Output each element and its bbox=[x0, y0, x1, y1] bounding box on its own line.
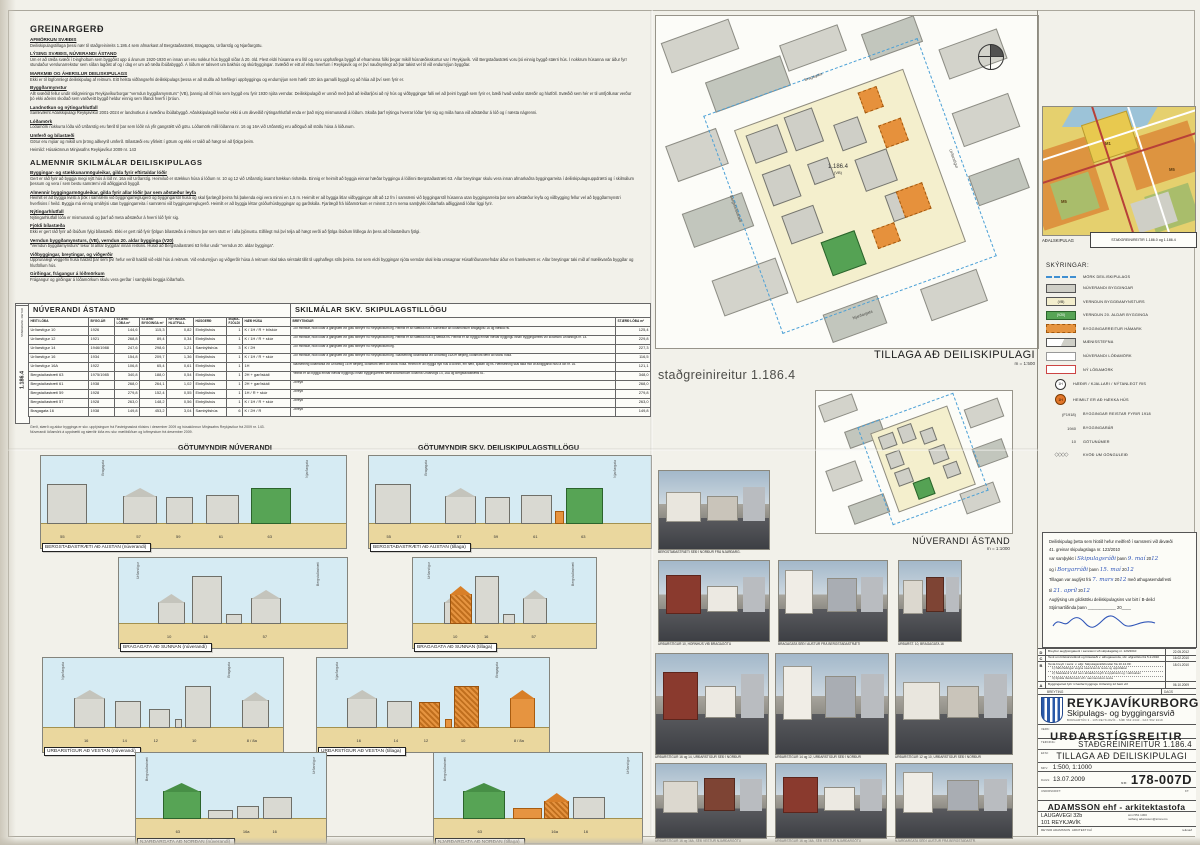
cell-nylod: 149,8 bbox=[616, 407, 651, 416]
report-section: Girðingar, frágangur á lóðmörkum Frágang… bbox=[30, 271, 642, 282]
house-outline bbox=[175, 719, 182, 728]
photo-shape bbox=[984, 779, 1007, 812]
report-section: Landnotkun og nýtingarhlutfall Samkvæmt … bbox=[30, 105, 642, 116]
cell-breyting: Óbreytt bbox=[291, 389, 616, 398]
section-heading: Viðbyggingar, breytingar, og viðgerðir bbox=[30, 252, 642, 257]
stadgreinireitur-label: staðgreinireitur 1.186.4 bbox=[658, 368, 795, 382]
house-outline bbox=[149, 709, 171, 728]
house-number: 8 / 8a bbox=[514, 738, 524, 743]
report-section: Umferð og bílastæði Götur eru mjóar og m… bbox=[30, 133, 642, 144]
cell-ar: 1975/1985 bbox=[89, 371, 115, 380]
architect-name: REYNIR ADAMSSON bbox=[1041, 828, 1070, 832]
street-name-label: Urðarstígur bbox=[627, 757, 630, 774]
section-text: Frágangur og girðingar á lóðamörkum skul… bbox=[30, 277, 636, 282]
context-building bbox=[818, 393, 858, 422]
street-name-label: Bergstaðastræti bbox=[444, 757, 447, 781]
section-text: Gert er ráð fyrir að byggja megi nýtt hú… bbox=[30, 176, 636, 187]
cell-lod: 247,6 bbox=[115, 344, 140, 353]
legend-swatch-icon: (V20) bbox=[1046, 311, 1076, 320]
house-outline bbox=[485, 497, 510, 524]
house-outline bbox=[555, 511, 563, 524]
stamp-text-segment: og í bbox=[1049, 567, 1057, 572]
kt-label: KT: bbox=[1185, 789, 1189, 799]
house-outline bbox=[237, 806, 260, 819]
section-heading: Verndun byggðamynsturs, (VB), verndun 20… bbox=[30, 238, 642, 243]
plan-block-id: 1.186.4 bbox=[828, 164, 848, 170]
context-building bbox=[964, 397, 1005, 428]
section-text: Götur eru mjóar og mikið um þröng aðkeyr… bbox=[30, 139, 636, 144]
cell-husgerd: Einbýlishús bbox=[194, 389, 227, 398]
site-photo bbox=[658, 470, 770, 550]
legend-label: BYGGINGAR REISTAR FYRIR 1918 bbox=[1083, 412, 1151, 416]
adalskipulag-caption: AÐALSKIPULAG bbox=[1042, 238, 1074, 243]
revision-id: D bbox=[1037, 649, 1046, 655]
cell-ibudir: 1 bbox=[227, 380, 243, 389]
legend-label: KVÖÐ UM GÖNGULEIÐ bbox=[1083, 453, 1128, 457]
site-plan-nuverandi bbox=[815, 390, 1013, 534]
stamp-line: var samþykkt í Skipulagsráði þann 9. maí… bbox=[1049, 554, 1190, 565]
revision-date: 06.10.2009 bbox=[1165, 682, 1196, 688]
page-edge-shadow bbox=[0, 0, 16, 845]
legend-item: 1H HEIMILT ER AÐ HÆKKA HÚS bbox=[1046, 394, 1194, 405]
dags-label: DAGS: bbox=[1041, 778, 1050, 782]
cell-husgerd: Einbýlishús bbox=[194, 362, 227, 371]
street-name-label: Bragagata bbox=[425, 460, 428, 476]
house-outline bbox=[208, 810, 233, 819]
teikn-value: STAÐGREINIREITUR 1.186.4 bbox=[1041, 740, 1192, 749]
col-nylod: STÆRÐ LÓÐA m² bbox=[616, 317, 651, 326]
mkv-label: MKV: bbox=[1041, 766, 1048, 770]
table-row: Bergstaðastræti 59 1928 279,8 152,4 0,55… bbox=[29, 389, 651, 398]
context-building bbox=[968, 158, 1030, 207]
cell-bygg: 65,4 bbox=[140, 362, 167, 371]
handwritten-entry: 7. mars bbox=[1092, 577, 1113, 583]
stamp-text-segment: þann bbox=[1088, 567, 1100, 572]
stamp-line: og í Borgarráði þann 15. maí 2012 bbox=[1049, 565, 1190, 576]
block-building bbox=[745, 124, 787, 164]
revision-text: Byggingarreit fyrir 1 hæðar byggingu Urð… bbox=[1046, 682, 1165, 688]
cell-haed: 2H + garðskáli bbox=[243, 380, 291, 389]
stamp-text: Deiliskipulag þetta sem hlotið hefur með… bbox=[1049, 538, 1190, 612]
caption-text: TILLAGA AÐ DEILISKIPULAGI bbox=[735, 349, 1035, 361]
street-name-label: Bragagata bbox=[496, 662, 499, 678]
legend-item: ◇◇◇◇ KVÖÐ UM GÖNGULEIÐ bbox=[1046, 451, 1194, 460]
elevation-drawing: BergstaðastrætiUrðarstígur6316a16NJARÐAR… bbox=[433, 752, 643, 844]
cell-ar: 1928 bbox=[89, 398, 115, 407]
house-outline bbox=[347, 698, 377, 728]
photo-caption: URÐARSTÍGUR 14 og 12, URÐARSTÍGUR SÉÐ Í … bbox=[775, 755, 911, 759]
stamp-text-segment: Stjórnartíðinda þann ____________ 20____ bbox=[1049, 605, 1131, 610]
cell-breyting: Lóð minnkar, hluti lóðar á gangstétt við… bbox=[291, 344, 616, 353]
cell-heiti: Bragagata 16 bbox=[29, 407, 89, 416]
section-text: Lóðamörk nokkurra lóða við Urðarstíg eru… bbox=[30, 124, 636, 129]
cell-heiti: Urðarstígur 16 bbox=[29, 353, 89, 362]
fold-crease bbox=[8, 448, 1038, 451]
cell-bygg: 152,4 bbox=[140, 389, 167, 398]
cell-ar: 1922 bbox=[89, 362, 115, 371]
cell-breyting: Lóð minnkar, hluti lóðar á gangstétt við… bbox=[291, 326, 616, 335]
photo-caption: BRAGAGATA SÉÐ Í AUSTUR FRÁ BERGSTAÐASTRÆ… bbox=[778, 642, 910, 646]
greinargerd-body: AFMÖRKUN SVÆÐIS Deiliskipulagstillaga þe… bbox=[30, 37, 642, 152]
handwritten-entry: Borgarráði bbox=[1057, 567, 1088, 573]
cell-breyting: Óbreytt bbox=[291, 407, 616, 416]
revision-table: DBreyttur auglýsingatexti í samræmi við … bbox=[1037, 648, 1196, 695]
cell-breyting: Heimilt er að byggja einnar hæðar byggin… bbox=[291, 371, 616, 380]
house-outline bbox=[166, 497, 193, 524]
table-row: Urðarstígur 12 1921 268,8 89,4 0,34 Einb… bbox=[29, 335, 651, 344]
efni-row: EFNI: TILLAGA AÐ DEILISKIPULAGI bbox=[1037, 750, 1196, 763]
legend-label: HÆÐIR / KJALLARI / NÝTANLEGT RIS bbox=[1073, 382, 1146, 386]
handwritten-entry: 12 bbox=[1083, 588, 1090, 594]
cell-nyt: 0,54 bbox=[167, 371, 194, 380]
stamp-line: Stjórnartíðinda þann ____________ 20____ bbox=[1049, 604, 1190, 612]
cell-haed: 1H / R + skúr bbox=[243, 389, 291, 398]
dags-nr-row: DAGS: 13.07.2009 NR:178-007D bbox=[1037, 772, 1196, 788]
photo-caption: URÐARSTÍGUR 10, HORNHÚS VIÐ BRAGAGÖTU bbox=[658, 642, 792, 646]
org-address: BORGARTÚN 3 - 105 REYKJAVÍK - SÍMI 563 2… bbox=[1067, 718, 1199, 722]
cell-ar: 1938 bbox=[89, 407, 115, 416]
table-header-row: HEITI LÓÐA BYGG.ÁR STÆRÐ LÓÐA m² STÆRÐ B… bbox=[29, 317, 651, 326]
section-heading: Lóðamörk bbox=[30, 119, 642, 124]
photo-caption: BERGSTAÐASTRÆTI SÉÐ Í NORÐUR FRÁ NJARÐAR… bbox=[658, 550, 792, 554]
cell-lod: 154,8 bbox=[115, 353, 140, 362]
stamp-line: 41. greinar skipulagslaga nr. 123/2010 bbox=[1049, 546, 1190, 554]
cell-bygg: 298,6 bbox=[140, 344, 167, 353]
block-building bbox=[781, 205, 823, 245]
house-outline bbox=[115, 701, 141, 728]
table-row: Bergstaðastræti 57 1928 263,0 148,2 0,56… bbox=[29, 398, 651, 407]
cell-husgerd: Einbýlishús bbox=[194, 380, 227, 389]
photo-shape bbox=[903, 682, 940, 720]
legend-item: (F1918) BYGGINGAR REISTAR FYRIR 1918 bbox=[1046, 410, 1194, 419]
handwritten-entry: 12 bbox=[1127, 567, 1134, 573]
cell-lod: 279,8 bbox=[115, 389, 140, 398]
cell-nylod: 229,8 bbox=[616, 335, 651, 344]
street-name-label: Njarðargata bbox=[306, 460, 309, 478]
street-name-label: Bergstaðastræti bbox=[146, 757, 149, 781]
elevation-label: BRAGAGATA AÐ SUNNAN (tillaga) bbox=[414, 643, 497, 652]
house-outline bbox=[566, 488, 603, 524]
context-building bbox=[661, 19, 740, 74]
cell-heiti: Bergstaðastræti 57 bbox=[29, 398, 89, 407]
house-outline bbox=[513, 808, 542, 819]
cell-haed: 2H + garðskáli bbox=[243, 371, 291, 380]
street-name-label: Bragagata bbox=[228, 662, 231, 678]
house-outline bbox=[47, 484, 87, 524]
report-section: Almennir byggingarmöguleikar, gilda fyri… bbox=[30, 190, 642, 206]
house-number: 8 / 8a bbox=[247, 738, 257, 743]
house-number: 10 bbox=[461, 738, 465, 743]
section-heading: Almennir byggingarmöguleikar, gilda fyri… bbox=[30, 190, 642, 195]
cell-husgerd: Einbýlishús bbox=[194, 353, 227, 362]
section-heading: MARKMIÐ OG ÁHERSLUR DEILISKIPULAGS bbox=[30, 71, 642, 76]
plan-center-label: 1.186.4 (VB) bbox=[808, 164, 868, 176]
legend-label: MÖRK DEILISKIPULAGS bbox=[1083, 275, 1130, 279]
legend-swatch-icon: 1H bbox=[1055, 379, 1066, 390]
cell-breyting: Óbreytt bbox=[291, 398, 616, 407]
elevation-drawing: NjarðargataBragagata161412108 / 8aURÐARS… bbox=[42, 657, 284, 753]
elevation-drawing: UrðarstígurBergstaðastræti101657BRAGAGAT… bbox=[412, 557, 597, 649]
stamp-line: Tillagan var auglýst frá 7. mars 2012 me… bbox=[1049, 575, 1190, 586]
section-text: Heimild: Húsakönnun Minjasafns Reykjavík… bbox=[30, 147, 636, 152]
col-lod: STÆRÐ LÓÐA m² bbox=[115, 317, 140, 326]
legend-swatch-icon bbox=[1046, 324, 1076, 333]
legend-label: GÖTUNÚMER bbox=[1083, 440, 1110, 444]
section-text: Deiliskipulagstillaga þessi nær til stað… bbox=[30, 43, 636, 48]
cell-nyt: 1,21 bbox=[167, 344, 194, 353]
site-photo bbox=[775, 653, 889, 755]
cell-nylod: 121,1 bbox=[616, 362, 651, 371]
cell-ar: 1921 bbox=[89, 335, 115, 344]
legend-items: MÖRK DEILISKIPULAGS NÚVERANDI BYGGINGAR … bbox=[1046, 275, 1194, 460]
revision-date: 18.01.2010 bbox=[1165, 662, 1196, 681]
house-number: 57 bbox=[136, 534, 140, 539]
stamp-text-segment: þann bbox=[1116, 556, 1128, 561]
house-outline bbox=[445, 719, 452, 728]
house-number: 16 bbox=[484, 634, 488, 639]
section-heading: Fjöldi bílastæða bbox=[30, 223, 642, 228]
legend-item: MÖRK DEILISKIPULAGS bbox=[1046, 275, 1194, 279]
handwritten-entry: 9. maí bbox=[1128, 556, 1146, 562]
table-group-right: SKILMÁLAR SKV. SKIPULAGSTILLÖGU bbox=[291, 304, 651, 318]
elevation-label: BRAGAGATA AÐ SUNNAN (núverandi) bbox=[120, 643, 212, 652]
col-bygg: STÆRÐ BYGGINGA m² bbox=[140, 317, 167, 326]
netfang-value: adamsson@simnet.is bbox=[1139, 817, 1168, 821]
verk-row: VERK: URÐARSTÍGSREITIR bbox=[1037, 725, 1196, 739]
photo-shape bbox=[947, 780, 979, 812]
building-reitur-orange bbox=[871, 222, 900, 249]
col-heiti: HEITI LÓÐA bbox=[29, 317, 89, 326]
photo-shape bbox=[825, 676, 856, 718]
cell-bygg: 89,4 bbox=[140, 335, 167, 344]
section-text: Allt svæðið fellur undir skilgreiningu R… bbox=[30, 91, 636, 102]
house-number: 63 bbox=[176, 829, 180, 834]
photo-shape bbox=[783, 666, 812, 720]
right-column-divider bbox=[1037, 10, 1038, 835]
teikn-label: TEIKNING: bbox=[1041, 740, 1055, 744]
greinargerd-title: GREINARGERÐ bbox=[30, 24, 642, 34]
architect-title: ARKITEKT FAÍ bbox=[1072, 828, 1092, 832]
cell-heiti: Bergstaðastræti 59 bbox=[29, 389, 89, 398]
legend-swatch-icon bbox=[1046, 338, 1076, 347]
cell-bygg: 209,7 bbox=[140, 353, 167, 362]
photo-shape bbox=[666, 492, 701, 522]
mkv-row: MKV: 1:500, 1:1000 bbox=[1037, 763, 1196, 772]
efni-value: TILLAGA AÐ DEILISKIPULAGI bbox=[1041, 751, 1192, 761]
house-number: 63 bbox=[268, 534, 272, 539]
cell-ar: 1946/1988 bbox=[89, 344, 115, 353]
table-footnotes: Gerð, stærð og aldur bygginga er skv. up… bbox=[30, 425, 265, 435]
cell-nyt: 0,55 bbox=[167, 389, 194, 398]
cell-breyting: Staðsetning lóðamarka við Urðarstíg 16 e… bbox=[291, 362, 616, 371]
block-building bbox=[919, 427, 937, 445]
fold-crease bbox=[650, 10, 653, 835]
architect-row: REYNIR ADAMSSON ARKITEKT FAÍ teiknað bbox=[1037, 827, 1196, 836]
legend-swatch-icon bbox=[1046, 276, 1076, 278]
almennir-title: ALMENNIR SKILMÁLAR DEILISKIPULAGS bbox=[30, 158, 642, 167]
photo-shape bbox=[926, 577, 944, 613]
undirskrift-row: UNDIRSKRIFT: KT: bbox=[1037, 788, 1196, 801]
photo-shape bbox=[946, 577, 958, 612]
cell-nyt: 0,61 bbox=[167, 362, 194, 371]
elevation-drawing: NjarðargataBragagata161412108 / 8aURÐARS… bbox=[316, 657, 550, 753]
elevation-label: URÐARSTÍGUR AÐ VESTAN (tillaga) bbox=[318, 747, 406, 756]
photo-shape bbox=[666, 575, 701, 614]
almennir-section: ALMENNIR SKILMÁLAR DEILISKIPULAGS Byggin… bbox=[30, 158, 642, 300]
photo-caption: URÐARST. 10, BRAGAGATA 16 bbox=[898, 642, 984, 646]
context-building bbox=[779, 24, 847, 72]
cell-lod: 268,0 bbox=[115, 380, 140, 389]
house-number: 16 bbox=[84, 738, 88, 743]
section-text: Samkvæmt Aðalskipulagi Reykjavíkur 2001-… bbox=[30, 110, 636, 115]
house-number: 57 bbox=[263, 634, 267, 639]
cell-heiti: Urðarstígur 16A bbox=[29, 362, 89, 371]
street-name-label: Urðarstígur bbox=[137, 562, 140, 579]
section-heading: Byggðarmynstur bbox=[30, 85, 642, 90]
house-outline bbox=[185, 686, 211, 728]
house-number: 63 bbox=[478, 829, 482, 834]
context-building bbox=[825, 460, 863, 492]
section-heading: Byggingar- og stækkunarmöguleikar, gilda… bbox=[30, 170, 642, 175]
site-photo bbox=[895, 653, 1013, 755]
revision-row: BTexta breytt í samr. v. afgr. Skipulags… bbox=[1037, 662, 1196, 682]
cell-husgerd: Einbýlishús bbox=[194, 335, 227, 344]
cell-lod: 340,8 bbox=[115, 371, 140, 380]
photo-caption: URÐARSTÍGUR 12 og 10, URÐARSTÍGUR SÉÐ Í … bbox=[895, 755, 1035, 759]
cell-lod: 144,6 bbox=[115, 326, 140, 335]
section-text: "Verndun byggðamynsturs" tekur til allra… bbox=[30, 243, 636, 248]
legend-label: BYGGINGARÁR bbox=[1083, 426, 1113, 430]
house-outline bbox=[510, 698, 536, 728]
elevation-drawing: BragagataNjarðargata5557596163BERGSTAÐAS… bbox=[368, 455, 652, 549]
reykjavik-coat-of-arms-icon bbox=[1041, 697, 1063, 723]
house-number: 16 bbox=[357, 738, 361, 743]
cell-nyt: 0,34 bbox=[167, 335, 194, 344]
legend-item: NÚVERANDI BYGGINGAR bbox=[1046, 284, 1194, 293]
cell-nyt: 1,02 bbox=[167, 380, 194, 389]
stamp-text-segment: með athugasemdafresti bbox=[1126, 577, 1171, 582]
cell-husgerd: Einbýlishús bbox=[194, 371, 227, 380]
revision-text: Texta breytt í samr. v. afgr. Skipulagsr… bbox=[1046, 662, 1165, 681]
col-ar: BYGG.ÁR bbox=[89, 317, 115, 326]
cell-nyt: 1,36 bbox=[167, 353, 194, 362]
table-row: Bragagata 16 1938 149,8 453,2 3,04 Sambý… bbox=[29, 407, 651, 416]
almennir-body: Byggingar- og stækkunarmöguleikar, gilda… bbox=[30, 170, 642, 282]
house-outline bbox=[158, 602, 185, 624]
cell-ibudir: 1 bbox=[227, 398, 243, 407]
col-breyting: BREYTINGAR bbox=[291, 317, 616, 326]
stamp-text-segment: Deiliskipulag þetta sem hlotið hefur með… bbox=[1049, 539, 1173, 544]
legend-item: 10 GÖTUNÚMER bbox=[1046, 437, 1194, 446]
greinargerd-section: GREINARGERÐ AFMÖRKUN SVÆÐIS Deiliskipula… bbox=[30, 24, 642, 154]
mkv-value: 1:500, 1:1000 bbox=[1053, 764, 1092, 771]
house-outline bbox=[544, 801, 569, 819]
photo-shape bbox=[860, 779, 882, 812]
cell-haed: K / 2H / R bbox=[243, 407, 291, 416]
section-heading: Landnotkun og nýtingarhlutfall bbox=[30, 105, 642, 110]
legend-item: 1H HÆÐIR / KJALLARI / NÝTANLEGT RIS bbox=[1046, 379, 1194, 390]
photo-shape bbox=[903, 580, 924, 614]
block-building bbox=[894, 467, 914, 487]
handwritten-entry: 15. maí bbox=[1100, 567, 1121, 573]
protected-building-green bbox=[913, 477, 936, 500]
house-outline bbox=[521, 495, 552, 524]
block-building bbox=[897, 423, 917, 444]
stamp-line: Deiliskipulag þetta sem hlotið hefur með… bbox=[1049, 538, 1190, 546]
teiknad-label: teiknað bbox=[1182, 828, 1192, 835]
legend-swatch-icon: (VB) bbox=[1046, 297, 1076, 306]
street-name-label: Njarðargata bbox=[614, 460, 617, 478]
block-building bbox=[942, 461, 961, 479]
dept-name: Skipulags- og byggingarsvið bbox=[1067, 709, 1199, 718]
site-photo bbox=[658, 560, 770, 642]
cell-bygg: 115,3 bbox=[140, 326, 167, 335]
street-name-label: Bergstaðastræti bbox=[572, 562, 575, 586]
table-row: Bergstaðastræti 63 1975/1985 340,8 188,0… bbox=[29, 371, 651, 380]
elevation-drawing: BergstaðastrætiUrðarstígur6316a16NJARÐAR… bbox=[135, 752, 327, 844]
block-building bbox=[784, 107, 825, 151]
house-outline bbox=[206, 495, 240, 524]
stamp-text-segment: var samþykkt í bbox=[1049, 556, 1077, 561]
cell-nyt: 3,04 bbox=[167, 407, 194, 416]
house-outline bbox=[503, 614, 516, 624]
photo-shape bbox=[785, 570, 813, 614]
section-text: Heimilt er að byggja kvisti á þök í samr… bbox=[30, 195, 636, 206]
photo-shape bbox=[663, 781, 698, 813]
site-photo bbox=[778, 560, 888, 642]
report-section: Verndun byggðamynsturs, (VB), verndun 20… bbox=[30, 238, 642, 249]
photo-shape bbox=[743, 487, 765, 521]
legend-label: BYGGINGARREITUR HÁMARK bbox=[1083, 327, 1142, 331]
stadgreinireitir-box: STAÐGREINIREITIR 1.186.0 og 1.186.4 bbox=[1090, 232, 1197, 248]
house-number: 14 bbox=[122, 738, 126, 743]
zone-label-m5: M5 bbox=[1169, 167, 1175, 172]
report-section: Byggðarmynstur Allt svæðið fellur undir … bbox=[30, 85, 642, 101]
section-text: Ekki er gert ráð fyrir að íbúðum fylgi b… bbox=[30, 229, 636, 234]
cell-lod: 149,8 bbox=[115, 407, 140, 416]
photo-shape bbox=[740, 779, 762, 812]
legend-title: SKÝRINGAR: bbox=[1046, 262, 1194, 269]
report-section: Byggingar- og stækkunarmöguleikar, gilda… bbox=[30, 170, 642, 186]
house-number: 61 bbox=[219, 534, 223, 539]
section-text: Um er að ræða svæði í Þingholtum sem byg… bbox=[30, 57, 636, 68]
site-photo bbox=[655, 653, 769, 755]
house-outline bbox=[163, 791, 201, 819]
firm-addr2: 101 REYKJAVÍK bbox=[1041, 820, 1081, 826]
handwritten-entry: Skipulagsráði bbox=[1077, 556, 1116, 562]
block-building bbox=[885, 450, 905, 470]
cell-ibudir: 1 bbox=[227, 335, 243, 344]
handwritten-entry: 12 bbox=[1151, 556, 1158, 562]
house-number: 10 bbox=[453, 634, 457, 639]
legend-swatch-icon: 10 bbox=[1046, 437, 1076, 446]
cell-bygg: 188,0 bbox=[140, 371, 167, 380]
house-number: 12 bbox=[424, 738, 428, 743]
title-block-header: REYKJAVÍKURBORG Skipulags- og byggingars… bbox=[1037, 695, 1196, 725]
cell-ibudir: 1 bbox=[227, 389, 243, 398]
cell-ibudir: 1 bbox=[227, 353, 243, 362]
section-text: Upprunalegt veggefni húsa haldist þar se… bbox=[30, 257, 636, 268]
section-heading: LÝSING SVÆÐIS, NÚVERANDI ÁSTAND bbox=[30, 51, 642, 56]
cell-nyt: 0,82 bbox=[167, 326, 194, 335]
cell-lod: 268,8 bbox=[115, 335, 140, 344]
legend: SKÝRINGAR: MÖRK DEILISKIPULAGS NÚVERANDI… bbox=[1046, 262, 1194, 464]
legend-swatch-icon bbox=[1046, 365, 1076, 374]
house-outline bbox=[523, 598, 547, 624]
photo-shape bbox=[903, 772, 933, 812]
cell-ar: 1928 bbox=[89, 389, 115, 398]
house-outline bbox=[123, 496, 157, 524]
